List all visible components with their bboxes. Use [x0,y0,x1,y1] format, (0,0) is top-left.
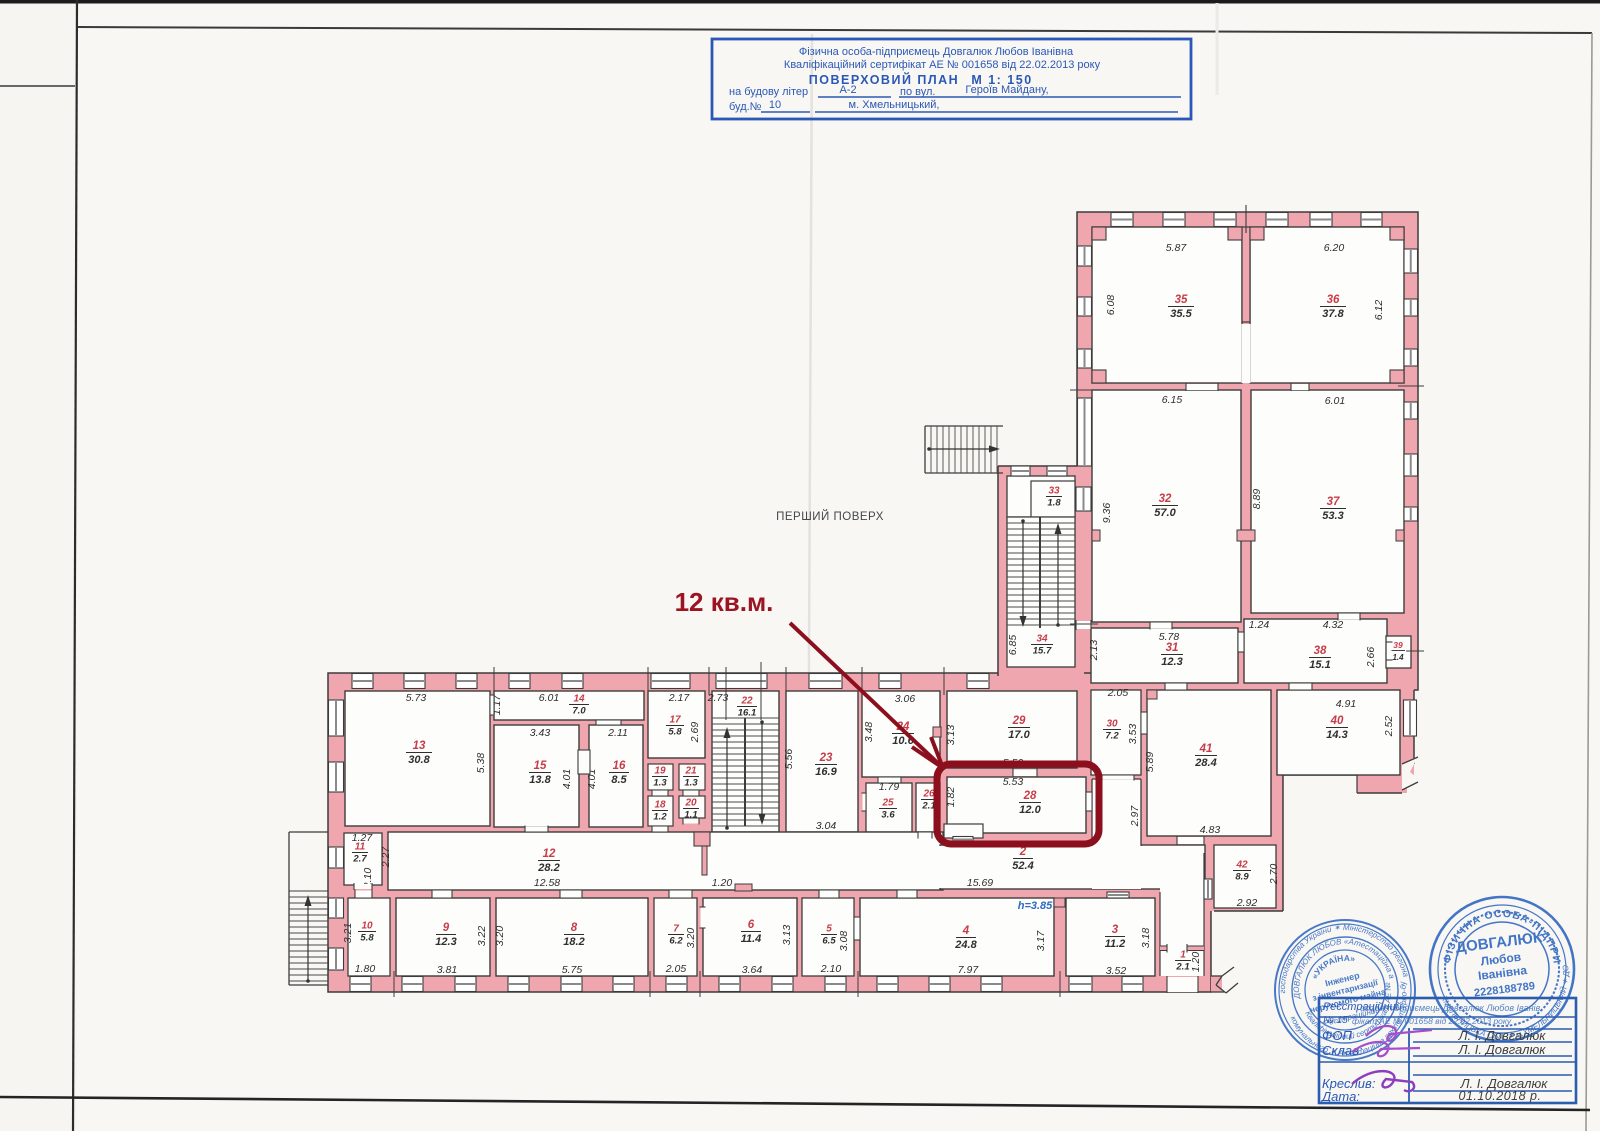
svg-text:2.13: 2.13 [1088,640,1100,662]
svg-text:37: 37 [1327,496,1340,508]
svg-text:3.04: 3.04 [816,820,837,832]
svg-text:Склав:: Склав: [1322,1043,1363,1058]
svg-text:ПЕРШИЙ ПОВЕРХ: ПЕРШИЙ ПОВЕРХ [776,510,884,523]
svg-text:h=3.85: h=3.85 [1018,900,1053,912]
svg-text:3.43: 3.43 [530,727,551,739]
svg-text:2.17: 2.17 [668,692,691,704]
svg-text:30.8: 30.8 [408,754,430,766]
svg-text:1.82: 1.82 [945,787,957,808]
svg-text:1.4: 1.4 [1392,653,1404,662]
svg-text:12.0: 12.0 [1019,804,1041,816]
svg-text:3.6: 3.6 [881,810,895,821]
svg-text:01.10.2018 р.: 01.10.2018 р. [1459,1089,1542,1103]
svg-text:5.78: 5.78 [1159,631,1180,643]
svg-text:39: 39 [1393,640,1403,650]
svg-text:6.08: 6.08 [1105,295,1117,316]
svg-text:10: 10 [361,921,373,932]
svg-text:буд.№: буд.№ [729,101,762,113]
svg-text:33: 33 [1048,486,1060,497]
svg-text:1.3: 1.3 [684,778,698,789]
svg-text:2.70: 2.70 [1268,864,1280,886]
svg-text:29: 29 [1012,715,1026,727]
svg-text:3.08: 3.08 [838,931,850,952]
svg-text:17: 17 [669,715,681,726]
svg-text:31: 31 [1166,642,1179,654]
svg-text:1.20: 1.20 [712,877,733,889]
svg-text:2.11: 2.11 [607,727,628,739]
svg-text:17.0: 17.0 [1008,729,1030,741]
svg-text:6.2: 6.2 [669,936,683,947]
svg-text:8.5: 8.5 [611,774,627,786]
svg-text:38: 38 [1314,645,1327,657]
svg-text:Л. І. Довгалюк: Л. І. Довгалюк [1458,1028,1547,1043]
svg-text:13.8: 13.8 [529,774,551,786]
svg-text:Л. І. Довгалюк: Л. І. Довгалюк [1458,1042,1547,1057]
svg-text:3.22: 3.22 [476,926,488,947]
svg-text:2.05: 2.05 [665,963,687,975]
svg-text:3.17: 3.17 [1035,930,1047,952]
svg-text:35: 35 [1175,294,1188,306]
svg-text:35.5: 35.5 [1170,308,1192,320]
svg-text:32: 32 [1159,493,1172,505]
svg-text:41: 41 [1199,743,1213,755]
svg-text:2.1: 2.1 [921,801,935,812]
svg-text:11.2: 11.2 [1105,938,1126,950]
svg-text:особа-підприємець Довгалюк Лю: особа-підприємець Довгалюк Любов Іванів [1360,1003,1541,1013]
svg-text:6: 6 [748,919,755,931]
svg-text:21: 21 [684,766,697,777]
svg-text:ПОВЕРХОВИЙ ПЛАН: ПОВЕРХОВИЙ ПЛАН [809,72,959,87]
svg-text:42: 42 [1235,860,1248,871]
svg-text:14.3: 14.3 [1326,729,1347,741]
svg-text:ФОП: ФОП [1322,1028,1352,1043]
svg-text:4.91: 4.91 [1336,698,1356,710]
svg-text:2.73: 2.73 [707,692,729,704]
svg-text:3.52: 3.52 [1106,965,1127,977]
svg-text:5: 5 [826,924,832,935]
svg-text:5.73: 5.73 [406,692,427,704]
svg-text:1.24: 1.24 [1249,619,1270,631]
svg-text:12: 12 [543,848,556,860]
svg-text:2.92: 2.92 [1236,897,1258,909]
svg-text:15: 15 [534,760,547,772]
svg-text:6.12: 6.12 [1373,300,1385,321]
svg-text:3.06: 3.06 [895,693,916,705]
svg-text:13: 13 [413,740,426,752]
svg-text:3.64: 3.64 [742,964,763,976]
svg-text:6.5: 6.5 [822,936,836,947]
svg-text:25: 25 [881,798,894,809]
svg-text:3.53: 3.53 [1127,724,1139,745]
svg-text:3.20: 3.20 [494,926,506,947]
svg-text:5.8: 5.8 [360,933,374,944]
svg-text:15.7: 15.7 [1033,646,1052,657]
svg-text:12.3: 12.3 [1161,656,1182,668]
svg-text:5.8: 5.8 [668,727,682,738]
svg-text:6.85: 6.85 [1007,635,1019,656]
svg-text:3: 3 [1112,924,1119,936]
svg-text:3.21: 3.21 [342,923,354,943]
svg-text:4.32: 4.32 [1323,619,1344,631]
svg-text:3.13: 3.13 [781,925,793,946]
svg-text:23: 23 [819,752,833,764]
svg-text:4.01: 4.01 [561,769,573,789]
svg-text:14: 14 [573,694,585,705]
svg-text:2.1: 2.1 [1175,962,1189,973]
svg-text:18: 18 [654,800,666,811]
svg-text:Дата:: Дата: [1320,1089,1360,1104]
svg-text:1.80: 1.80 [355,963,376,975]
svg-text:6.15: 6.15 [1162,394,1183,406]
svg-text:4: 4 [962,925,970,937]
svg-text:2: 2 [1019,846,1027,858]
svg-text:А-2: А-2 [839,84,856,96]
svg-text:2.66: 2.66 [1365,647,1377,669]
svg-text:3.20: 3.20 [685,928,697,949]
svg-text:52.4: 52.4 [1012,860,1033,872]
svg-text:28.4: 28.4 [1194,757,1216,769]
svg-text:2.7: 2.7 [352,854,367,865]
svg-text:2.69: 2.69 [689,722,701,744]
svg-text:1.27: 1.27 [352,832,374,844]
svg-text:1.3: 1.3 [653,778,667,789]
svg-text:1.2: 1.2 [653,812,667,823]
svg-text:18.2: 18.2 [563,936,584,948]
svg-text:Фізична особа-підприємець Довг: Фізична особа-підприємець Довгалюк Любов… [799,46,1074,58]
svg-text:12.58: 12.58 [534,877,560,889]
svg-text:3.48: 3.48 [863,722,875,743]
svg-text:на будову літер: на будову літер [729,86,808,98]
svg-text:8.89: 8.89 [1251,489,1263,510]
svg-text:10: 10 [769,99,781,111]
svg-text:3.81: 3.81 [437,964,457,976]
svg-text:5.38: 5.38 [475,753,487,774]
svg-text:3.13: 3.13 [945,725,957,746]
svg-text:4.83: 4.83 [1200,824,1221,836]
svg-text:16.9: 16.9 [815,766,837,778]
svg-text:5.56: 5.56 [783,749,795,770]
svg-text:11.4: 11.4 [741,933,762,945]
svg-text:2.27: 2.27 [380,846,392,869]
svg-text:15.69: 15.69 [967,877,993,889]
svg-text:6.01: 6.01 [539,692,559,704]
svg-text:12.3: 12.3 [435,936,456,948]
svg-text:по вул.: по вул. [900,86,935,98]
svg-text:5.89: 5.89 [1144,752,1156,773]
svg-text:57.0: 57.0 [1154,507,1176,519]
svg-text:7.2: 7.2 [1105,731,1119,742]
svg-text:2.10: 2.10 [820,963,842,975]
svg-text:5.53: 5.53 [1003,776,1024,788]
svg-text:7.0: 7.0 [572,706,586,717]
svg-text:36: 36 [1327,294,1340,306]
svg-text:20: 20 [684,798,697,809]
svg-text:34: 34 [1036,634,1048,645]
svg-text:1: 1 [1180,950,1186,961]
svg-text:6.01: 6.01 [1325,395,1345,407]
svg-text:2.05: 2.05 [1107,687,1129,699]
svg-text:6.20: 6.20 [1324,242,1345,254]
svg-text:1.8: 1.8 [1047,498,1061,509]
svg-text:28.2: 28.2 [537,862,559,874]
svg-text:7: 7 [673,924,679,935]
svg-text:53.3: 53.3 [1322,510,1343,522]
svg-text:19: 19 [654,766,666,777]
svg-text:16.1: 16.1 [738,708,757,719]
svg-text:16: 16 [613,760,626,772]
svg-text:26: 26 [922,789,935,800]
svg-text:1.20: 1.20 [1190,952,1202,973]
svg-text:24.8: 24.8 [954,939,977,951]
svg-text:15.1: 15.1 [1309,659,1330,671]
svg-text:5.87: 5.87 [1166,242,1188,254]
svg-text:3.18: 3.18 [1140,928,1152,949]
svg-text:9.36: 9.36 [1101,503,1113,524]
svg-text:9: 9 [443,922,450,934]
svg-text:7.97: 7.97 [958,964,980,976]
svg-text:8: 8 [571,922,578,934]
svg-text:8.9: 8.9 [1235,872,1249,883]
svg-text:м. Хмельницький,: м. Хмельницький, [849,99,940,111]
svg-text:Героїв Майдану,: Героїв Майдану, [965,84,1048,96]
svg-text:2.97: 2.97 [1129,805,1141,828]
svg-text:5.75: 5.75 [562,964,583,976]
svg-text:Кваліфікаційний сертифікат АЕ: Кваліфікаційний сертифікат АЕ № 001658 в… [784,59,1101,71]
svg-text:2.52: 2.52 [1383,716,1395,738]
svg-text:1.79: 1.79 [879,781,900,793]
svg-text:22: 22 [740,696,753,707]
svg-text:12 кв.м.: 12 кв.м. [675,587,774,617]
svg-text:40: 40 [1330,715,1344,727]
svg-text:37.8: 37.8 [1322,308,1344,320]
svg-text:28: 28 [1023,790,1037,802]
svg-text:30: 30 [1106,719,1118,730]
